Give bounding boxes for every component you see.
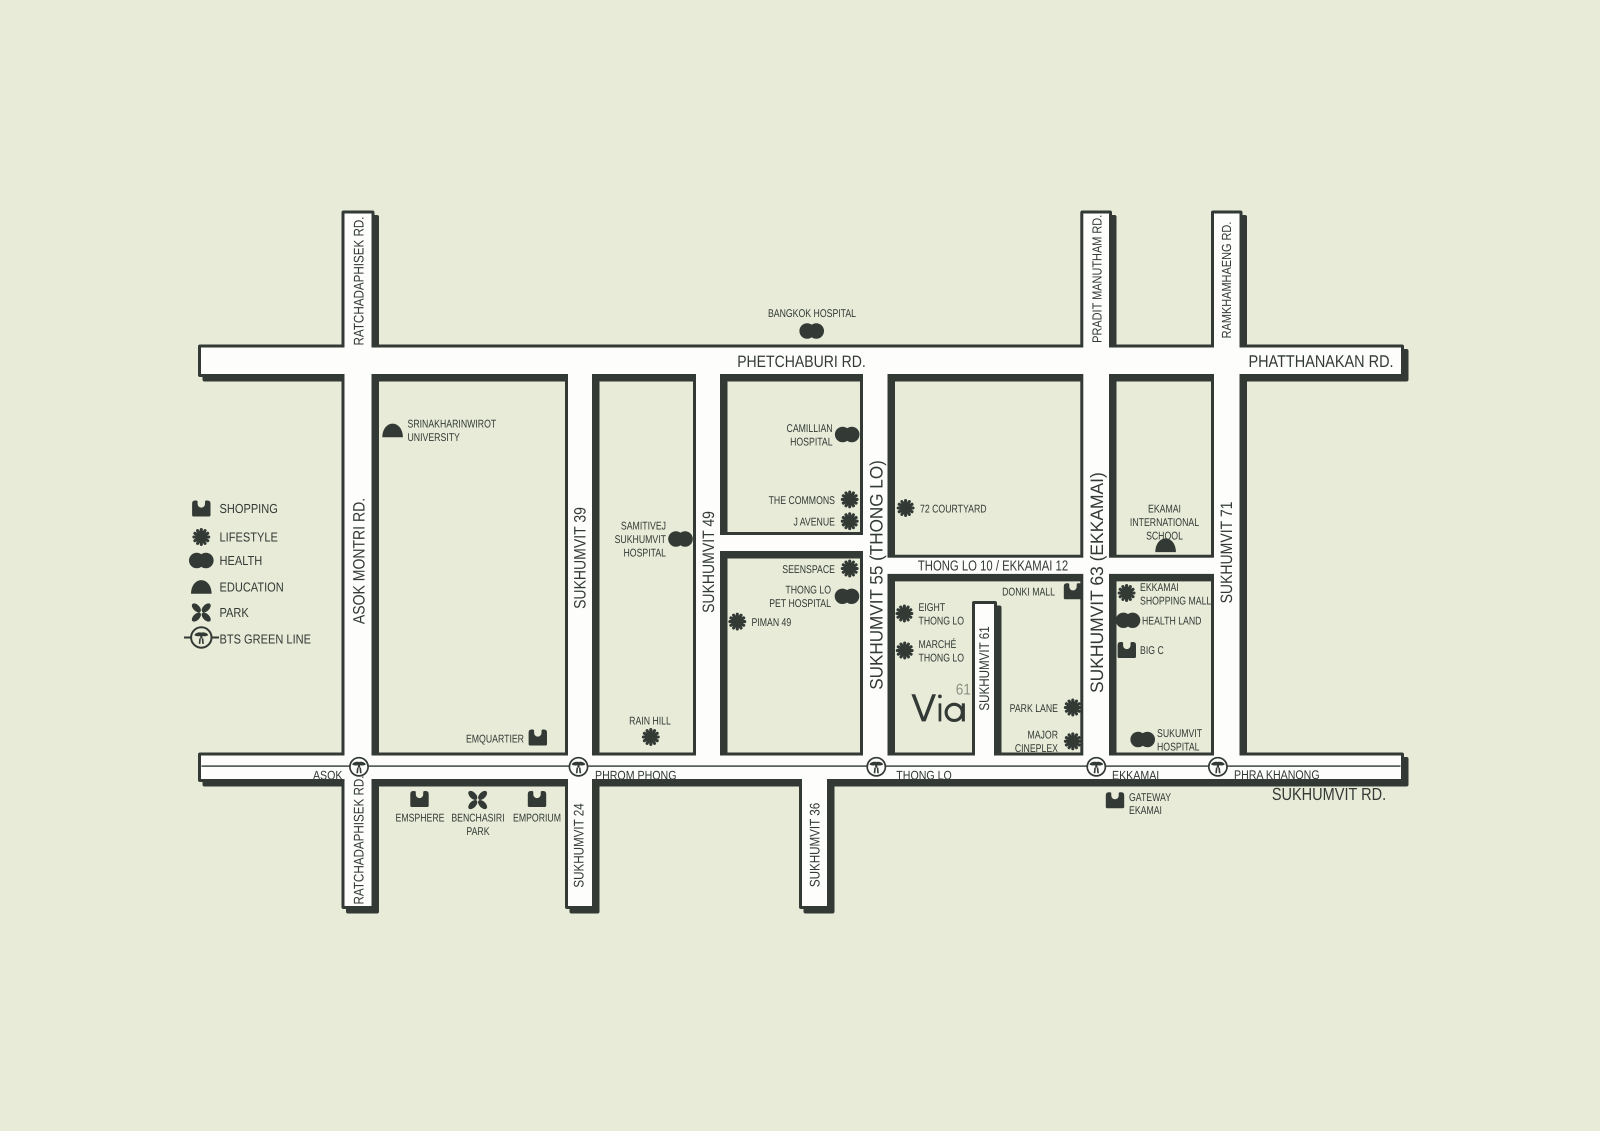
svg-text:BENCHASIRI: BENCHASIRI [451,812,504,824]
svg-text:SUKHUMVIT 49: SUKHUMVIT 49 [700,511,718,613]
svg-text:GATEWAY: GATEWAY [1129,792,1171,804]
svg-text:RAIN HILL: RAIN HILL [629,715,671,727]
svg-text:ASOK: ASOK [313,769,343,783]
svg-text:SUKHUMVIT 63 (EKKAMAI): SUKHUMVIT 63 (EKKAMAI) [1087,472,1107,693]
svg-text:SUKHUMVIT 71: SUKHUMVIT 71 [1218,502,1236,604]
svg-text:DONKI MALL: DONKI MALL [1002,586,1055,598]
svg-text:SHOPPING MALL: SHOPPING MALL [1140,596,1211,608]
svg-text:BTS GREEN LINE: BTS GREEN LINE [220,631,312,646]
svg-text:SCHOOL: SCHOOL [1146,530,1183,542]
svg-text:SUKUMVIT: SUKUMVIT [1157,728,1202,740]
svg-text:SEENSPACE: SEENSPACE [782,564,835,576]
svg-text:J AVENUE: J AVENUE [793,516,835,528]
svg-text:THONG LO 10 / EKKAMAI 12: THONG LO 10 / EKKAMAI 12 [918,559,1068,575]
svg-text:THONG LO: THONG LO [918,653,964,665]
svg-text:BIG C: BIG C [1140,645,1164,657]
svg-text:SUKHUMVIT 39: SUKHUMVIT 39 [572,507,590,609]
svg-text:INTERNATIONAL: INTERNATIONAL [1130,517,1199,529]
svg-text:SHOPPING: SHOPPING [220,501,278,516]
svg-text:PARK LANE: PARK LANE [1010,703,1058,715]
svg-text:BANGKOK HOSPITAL: BANGKOK HOSPITAL [768,308,856,320]
svg-text:PRADIT MANUTHAM RD.: PRADIT MANUTHAM RD. [1090,215,1105,343]
svg-text:EMQUARTIER: EMQUARTIER [466,733,524,745]
svg-text:SUKHUMVIT 55 (THONG LO): SUKHUMVIT 55 (THONG LO) [866,460,886,690]
svg-text:PET HOSPITAL: PET HOSPITAL [769,598,831,610]
svg-text:MAJOR: MAJOR [1027,729,1058,741]
svg-text:PHATTHANAKAN RD.: PHATTHANAKAN RD. [1248,352,1393,371]
svg-text:PHRA KHANONG: PHRA KHANONG [1234,768,1320,782]
svg-text:72 COURTYARD: 72 COURTYARD [920,503,987,515]
svg-text:SUKHUMVIT: SUKHUMVIT [615,534,667,546]
svg-text:EKAMAI: EKAMAI [1148,503,1181,515]
svg-text:PIMAN 49: PIMAN 49 [751,617,791,629]
svg-text:MARCHÉ: MARCHÉ [918,638,956,651]
svg-text:EMPORIUM: EMPORIUM [513,812,561,824]
svg-text:LIFESTYLE: LIFESTYLE [220,529,279,544]
svg-text:RATCHADAPHISEK RD.: RATCHADAPHISEK RD. [350,776,366,905]
svg-text:EKKAMAI: EKKAMAI [1140,582,1179,594]
svg-text:RATCHADAPHISEK RD.: RATCHADAPHISEK RD. [351,217,367,346]
svg-text:SUKHUMVIT 24: SUKHUMVIT 24 [571,803,587,888]
svg-text:HOSPITAL: HOSPITAL [623,547,666,559]
svg-text:EKKAMAI: EKKAMAI [1112,769,1159,783]
svg-text:PHROM PHONG: PHROM PHONG [595,769,676,783]
svg-text:ASOK MONTRI RD.: ASOK MONTRI RD. [350,498,368,624]
svg-text:CINEPLEX: CINEPLEX [1015,743,1059,755]
svg-text:SAMITIVEJ: SAMITIVEJ [621,520,666,532]
svg-text:61: 61 [956,681,971,698]
svg-text:RAMKHAMHAENG RD.: RAMKHAMHAENG RD. [1219,222,1234,339]
svg-text:PHETCHABURI RD.: PHETCHABURI RD. [737,353,866,371]
svg-text:EIGHT: EIGHT [918,602,945,614]
svg-text:THONG LO: THONG LO [896,769,952,783]
svg-text:THONG LO: THONG LO [918,616,964,628]
svg-text:SUKHUMVIT 36: SUKHUMVIT 36 [807,803,823,888]
svg-text:HOSPITAL: HOSPITAL [790,436,833,448]
svg-text:EDUCATION: EDUCATION [220,579,284,594]
svg-text:UNIVERSITY: UNIVERSITY [408,432,461,444]
svg-text:HOSPITAL: HOSPITAL [1157,742,1200,754]
svg-text:HEALTH LAND: HEALTH LAND [1142,615,1201,627]
svg-text:CAMILLIAN: CAMILLIAN [787,423,833,435]
svg-text:EKAMAI: EKAMAI [1129,805,1162,817]
svg-text:PARK: PARK [220,605,250,620]
svg-text:SUKHUMVIT 61: SUKHUMVIT 61 [976,626,992,711]
svg-text:HEALTH: HEALTH [220,553,263,568]
svg-text:EMSPHERE: EMSPHERE [396,812,445,824]
svg-text:SRINAKHARINWIROT: SRINAKHARINWIROT [408,419,497,431]
svg-text:SUKHUMVIT RD.: SUKHUMVIT RD. [1272,784,1386,804]
svg-text:THONG LO: THONG LO [785,584,831,596]
svg-text:THE COMMONS: THE COMMONS [769,495,835,507]
svg-text:PARK: PARK [466,826,490,838]
